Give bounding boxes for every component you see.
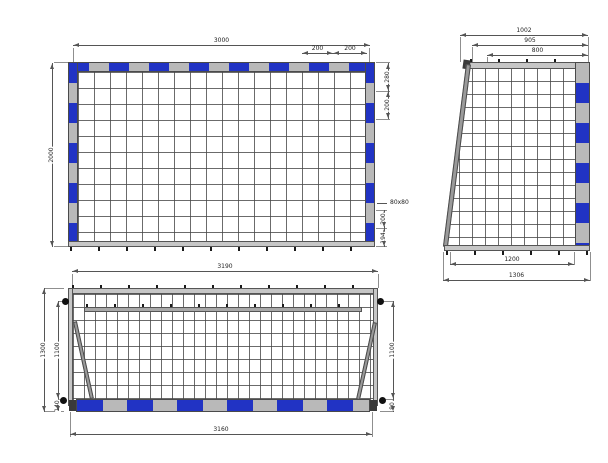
dim-label: 1300	[41, 341, 47, 358]
dim-front-side-band: 200	[388, 91, 389, 119]
extension-line	[590, 252, 591, 281]
dim-plan-offset-left: 140	[58, 399, 59, 412]
dim-plan-offset-right: 80	[393, 399, 394, 412]
dim-side-depth-top: 1002	[460, 35, 588, 36]
dim-label: 200	[311, 46, 324, 52]
dim-side-base-outer: 1306	[443, 280, 590, 281]
dim-front-post-foot: 194	[384, 228, 385, 247]
extension-line	[443, 252, 444, 281]
dim-plan-depth-outer: 1300	[44, 288, 45, 412]
extension-line	[378, 274, 379, 288]
plan-tension-bar	[84, 307, 362, 312]
leader-line	[377, 203, 387, 204]
dim-side-depth-mid: 905	[472, 45, 588, 46]
dim-side-base-inner: 1200	[450, 264, 574, 265]
front-crossbar	[68, 62, 375, 72]
dim-label: 3190	[216, 264, 233, 270]
dim-plan-width-top: 3190	[72, 271, 378, 272]
dim-front-corner-band: 280	[388, 63, 389, 91]
dim-label: 80	[390, 401, 396, 411]
dim-label: 1200	[503, 257, 520, 263]
corner-fitting	[62, 298, 69, 305]
front-ground-feet	[70, 247, 373, 251]
plan-crossbar	[76, 399, 370, 412]
dim-label: 905	[523, 38, 536, 44]
profile-label: 80x80	[389, 200, 410, 206]
extension-line	[588, 37, 589, 62]
dim-plan-depth-inner-left: 1100	[58, 301, 59, 399]
dim-label: 200	[385, 98, 391, 111]
plan-ground-left-bar	[68, 288, 73, 406]
extension-line	[369, 48, 370, 62]
dim-label: 1100	[55, 341, 61, 358]
dim-front-height: 2000	[52, 63, 53, 247]
dim-label: 1002	[515, 28, 532, 34]
dim-label: 280	[385, 70, 391, 83]
dim-label: 2000	[49, 146, 55, 163]
dim-front-post-band: 200	[384, 210, 385, 228]
extension-line	[54, 62, 68, 63]
plan-ground-right-bar	[373, 288, 378, 406]
dim-side-depth-inner: 800	[487, 55, 588, 56]
technical-drawing-canvas: 3000 200 200 2000 280 200 80x80 200 194	[0, 0, 608, 463]
dim-front-top-band-a: 200	[302, 53, 333, 54]
plan-crossbar-right-fitting	[370, 400, 377, 411]
front-left-post	[68, 62, 78, 247]
dim-label: 200	[343, 46, 356, 52]
extension-line	[44, 288, 64, 289]
dim-label: 3000	[213, 38, 230, 44]
dim-front-width: 3000	[73, 45, 370, 46]
front-net	[78, 72, 366, 241]
corner-fitting	[60, 397, 67, 404]
extension-line	[54, 246, 68, 247]
dim-label: 1306	[508, 273, 525, 279]
plan-crossbar-left-fitting	[69, 400, 76, 411]
side-ground-feet	[446, 251, 588, 255]
dim-plan-width-bottom: 3160	[70, 434, 372, 435]
dim-front-top-band-b: 200	[333, 53, 367, 54]
dim-plan-depth-inner-right: 1100	[393, 301, 394, 399]
dim-label: 194	[381, 231, 387, 244]
front-right-post	[365, 62, 375, 247]
side-post	[575, 62, 590, 250]
extension-line	[460, 37, 461, 62]
corner-fitting	[377, 298, 384, 305]
extension-line	[73, 48, 74, 62]
dim-label: 3160	[212, 427, 229, 433]
corner-fitting	[379, 397, 386, 404]
side-top-bar	[466, 62, 576, 69]
dim-label: 200	[381, 212, 387, 225]
dim-label: 800	[531, 48, 544, 54]
plan-ground-back-bar	[68, 288, 378, 294]
dim-label: 1100	[390, 341, 396, 358]
